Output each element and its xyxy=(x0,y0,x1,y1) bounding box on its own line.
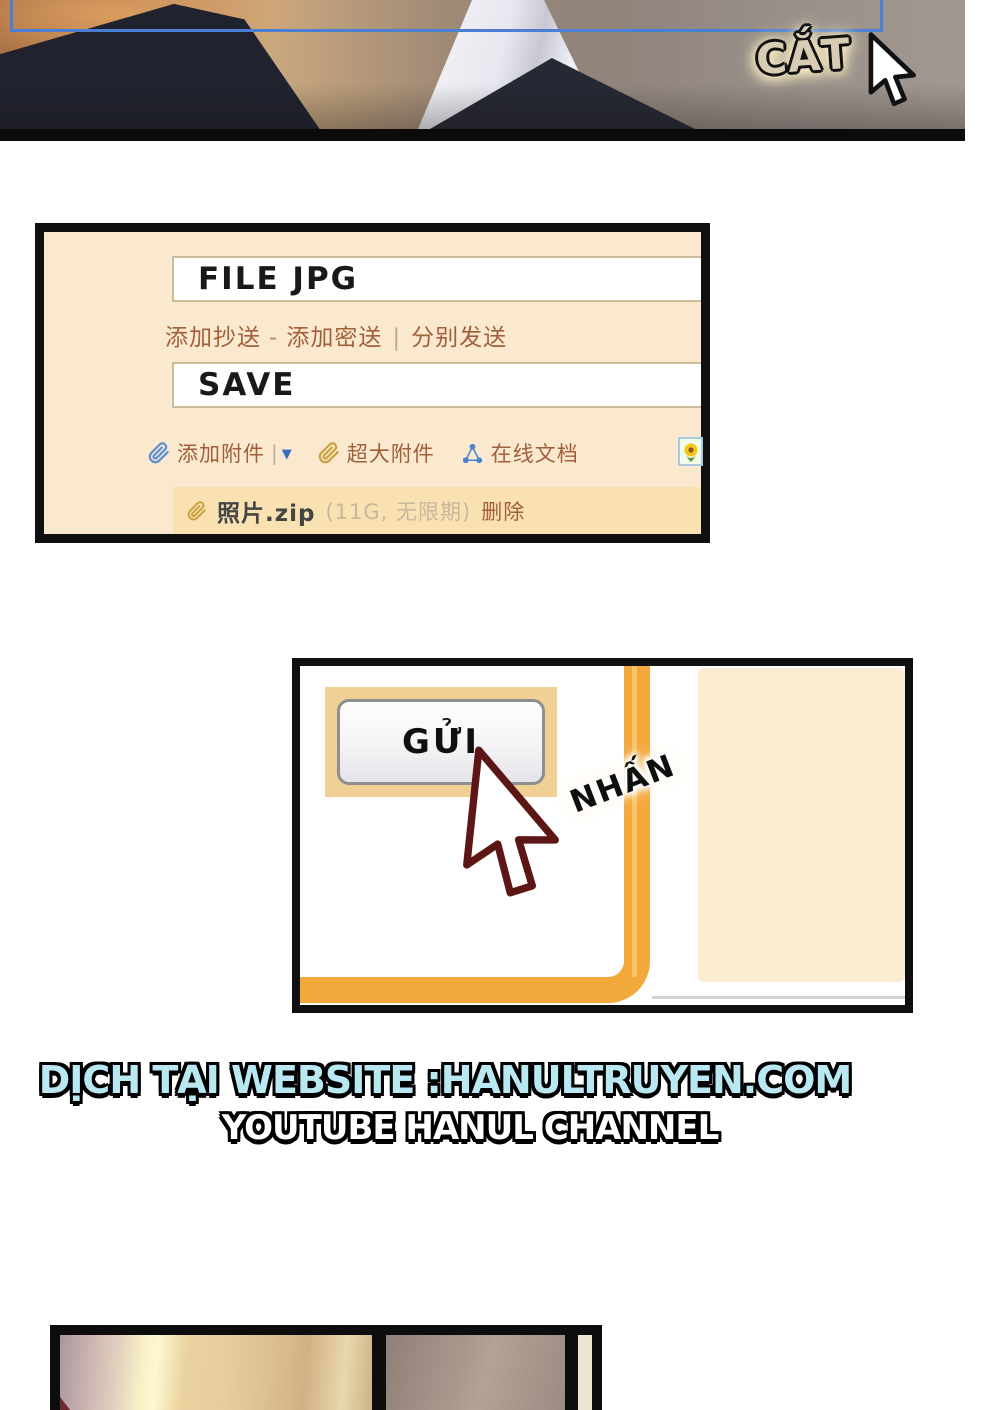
paperclip-gold-icon xyxy=(318,442,340,464)
cut-caption: CẮT xyxy=(754,29,852,85)
send-comic-panel: GỬI NHẤN xyxy=(292,658,913,1013)
paperclip-icon xyxy=(148,442,170,464)
attachment-meta: (11G, 无限期) xyxy=(325,496,471,526)
arrow-cursor-icon xyxy=(449,744,585,913)
scene-shadow xyxy=(0,84,965,129)
bottom-art-left xyxy=(60,1335,372,1410)
bottom-panel-art xyxy=(60,1335,592,1410)
credit-youtube-line: YOUTUBE HANUL CHANNEL xyxy=(30,1108,860,1148)
bottom-art-wedge xyxy=(60,1397,78,1410)
recipient-field[interactable]: FILE JPG xyxy=(172,256,701,302)
share-nodes-icon xyxy=(461,442,484,465)
bottom-art-divider xyxy=(372,1335,386,1410)
toolbar-separator: | xyxy=(265,441,282,465)
email-compose-panel: FILE JPG 添加抄送-添加密送|分别发送 SAVE 添加附件 | ▼ xyxy=(35,223,710,543)
selection-rectangle xyxy=(10,0,883,32)
sunflower-icon xyxy=(682,442,700,462)
top-comic-panel: CẮT xyxy=(0,0,965,141)
arrow-cursor-icon xyxy=(864,32,924,111)
scrollbar-highlight xyxy=(632,666,637,977)
screenshot-tool-button[interactable] xyxy=(678,437,703,466)
link-dash-separator: - xyxy=(261,325,286,351)
bottom-art-middle xyxy=(386,1335,565,1410)
attachment-toolbar: 添加附件 | ▼ 超大附件 xyxy=(148,435,579,471)
attachment-filename: 照片.zip xyxy=(217,494,315,528)
add-cc-link[interactable]: 添加抄送 xyxy=(165,325,261,351)
email-compose-inner: FILE JPG 添加抄送-添加密送|分别发送 SAVE 添加附件 | ▼ xyxy=(44,232,701,534)
cc-bcc-links-row: 添加抄送-添加密送|分别发送 xyxy=(165,318,507,352)
large-attachment-label: 超大附件 xyxy=(347,438,435,468)
large-attachment-button[interactable]: 超大附件 xyxy=(318,438,435,468)
send-separately-link[interactable]: 分别发送 xyxy=(411,325,507,351)
add-attachment-label: 添加附件 xyxy=(177,438,265,468)
bottom-art-right xyxy=(578,1335,592,1410)
pane-divider-line xyxy=(652,996,905,999)
comic-page: CẮT FILE JPG 添加抄送-添加密送|分别发送 SAVE 添加附件 | … xyxy=(0,0,1000,1410)
attachment-dropdown-caret[interactable]: ▼ xyxy=(282,445,292,462)
attachment-row: 照片.zip (11G, 无限期) 删除 xyxy=(173,487,701,534)
add-bcc-link[interactable]: 添加密送 xyxy=(286,325,382,351)
add-attachment-button[interactable]: 添加附件 xyxy=(148,438,265,468)
online-doc-button[interactable]: 在线文档 xyxy=(461,438,579,468)
attachment-delete-link[interactable]: 删除 xyxy=(481,496,525,526)
link-pipe-separator: | xyxy=(382,325,411,351)
online-doc-label: 在线文档 xyxy=(491,438,579,468)
subject-field[interactable]: SAVE xyxy=(172,362,701,408)
paperclip-gold-icon xyxy=(187,501,207,521)
bottom-comic-panel xyxy=(50,1325,602,1410)
reading-pane xyxy=(698,668,905,982)
translator-credits: DỊCH TẠI WEBSITE :HANULTRUYEN.COM YOUTUB… xyxy=(30,1058,860,1148)
bottom-art-divider xyxy=(565,1335,578,1410)
credit-website-line: DỊCH TẠI WEBSITE :HANULTRUYEN.COM xyxy=(30,1058,860,1102)
